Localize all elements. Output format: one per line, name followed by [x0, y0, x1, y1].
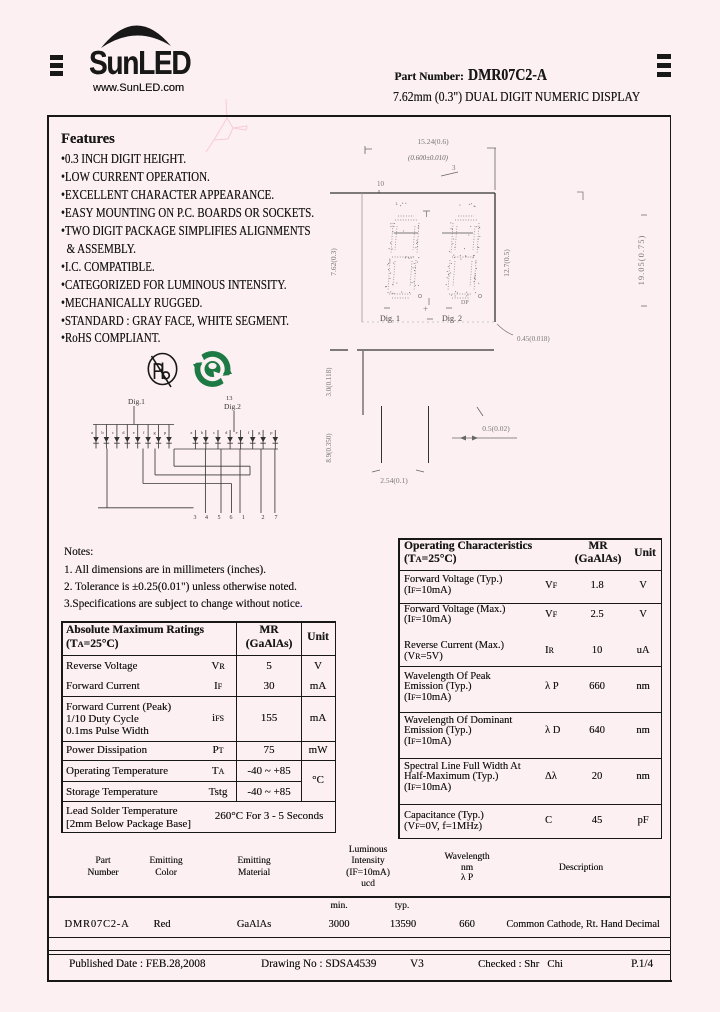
svg-text:a: a	[190, 430, 192, 435]
svg-text:f: f	[143, 430, 145, 435]
svg-text:0.45(0.018): 0.45(0.018)	[517, 335, 550, 343]
svg-text:10: 10	[377, 180, 385, 188]
svg-text:b: b	[201, 430, 204, 435]
svg-text:e: e	[133, 430, 135, 435]
svg-text:+: +	[423, 304, 428, 314]
svg-text:(0.600±0.010): (0.600±0.010)	[408, 154, 449, 162]
svg-text:p: p	[164, 430, 167, 435]
svg-text:7: 7	[275, 515, 278, 521]
svg-text:2.54(0.1): 2.54(0.1)	[380, 476, 408, 485]
svg-text:Dig. 2: Dig. 2	[442, 314, 462, 323]
svg-text:3: 3	[194, 515, 197, 521]
svg-text:e: e	[236, 430, 238, 435]
svg-text:0.5(0.02): 0.5(0.02)	[482, 424, 510, 433]
svg-text:DP: DP	[461, 300, 469, 306]
svg-text:b: b	[101, 430, 104, 435]
svg-text:d: d	[122, 430, 125, 435]
svg-text:Dig.2: Dig.2	[224, 402, 241, 411]
svg-text:a: a	[91, 430, 93, 435]
svg-text:19.05(0.75): 19.05(0.75)	[636, 235, 646, 286]
svg-text:3: 3	[452, 164, 456, 172]
svg-text:5: 5	[218, 515, 221, 521]
svg-text:7.62(0.3): 7.62(0.3)	[329, 248, 338, 276]
svg-text:d: d	[225, 430, 228, 435]
svg-text:2: 2	[262, 515, 265, 521]
svg-text:1: 1	[242, 515, 245, 521]
svg-text:g: g	[258, 430, 261, 435]
svg-text:p: p	[270, 430, 273, 435]
svg-text:c: c	[213, 430, 215, 435]
svg-text:Dig. 1: Dig. 1	[380, 314, 400, 323]
svg-text:4: 4	[205, 515, 208, 521]
svg-text:Dig.1: Dig.1	[128, 397, 145, 406]
svg-text:6: 6	[230, 515, 233, 521]
svg-text:c: c	[112, 430, 114, 435]
svg-text:3.0(0.118): 3.0(0.118)	[325, 367, 333, 397]
svg-text:12.7(0.5): 12.7(0.5)	[502, 249, 511, 277]
svg-text:g: g	[154, 430, 157, 435]
svg-text:13: 13	[226, 395, 233, 402]
svg-text:f: f	[248, 430, 250, 435]
svg-text:15.24(0.6): 15.24(0.6)	[417, 137, 449, 146]
svg-text:8.9(0.350): 8.9(0.350)	[325, 433, 333, 463]
